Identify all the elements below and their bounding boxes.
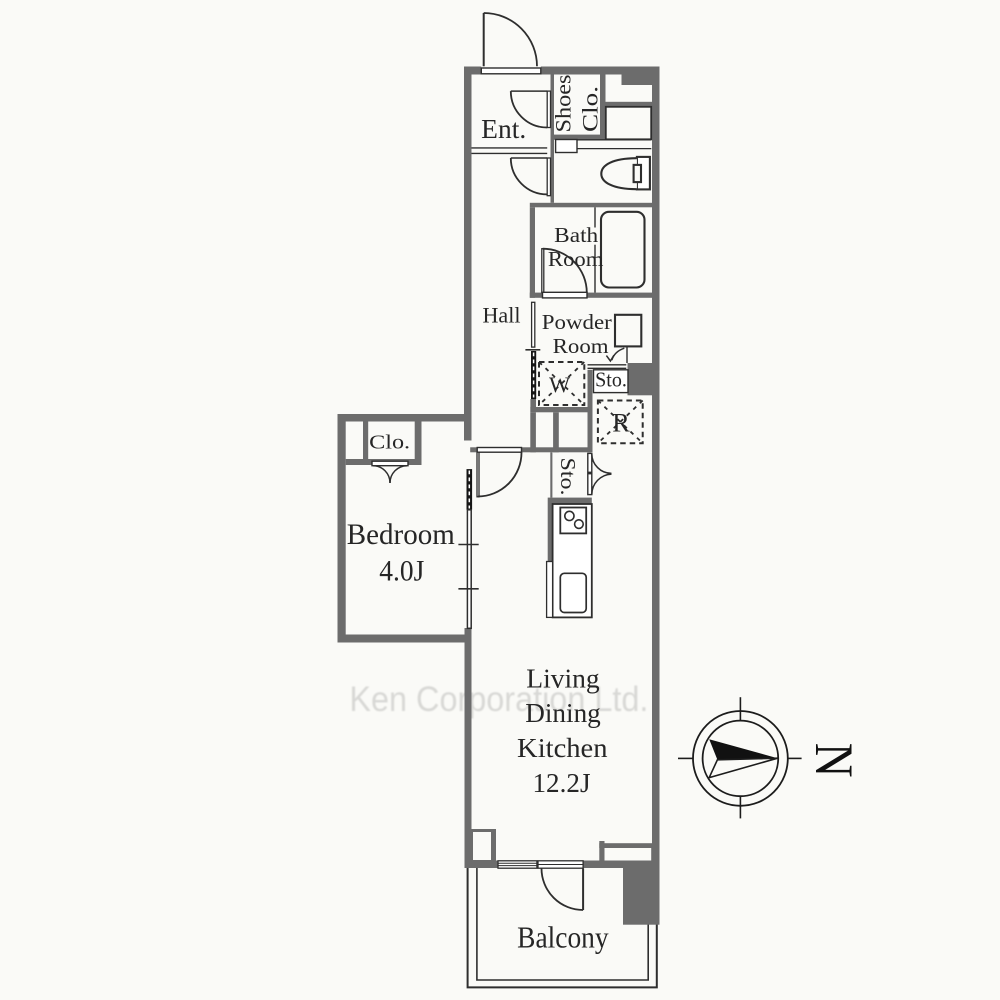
svg-text:Powder: Powder <box>542 310 612 334</box>
svg-text:Shoes: Shoes <box>550 75 575 133</box>
svg-text:N: N <box>804 743 864 778</box>
svg-text:Bath: Bath <box>554 223 598 247</box>
svg-text:Hall: Hall <box>483 302 521 327</box>
svg-text:Sto.: Sto. <box>556 458 580 496</box>
svg-text:Kitchen: Kitchen <box>517 732 608 763</box>
svg-text:Sto.: Sto. <box>595 368 627 392</box>
svg-text:4.0J: 4.0J <box>379 556 424 588</box>
svg-text:Living: Living <box>526 662 600 693</box>
svg-text:Ken Corporation Ltd.: Ken Corporation Ltd. <box>349 679 648 719</box>
svg-text:Room: Room <box>548 247 604 271</box>
svg-text:12.2J: 12.2J <box>533 767 591 798</box>
svg-text:R: R <box>612 408 630 437</box>
svg-text:Balcony: Balcony <box>517 920 609 954</box>
svg-text:Room: Room <box>553 334 609 358</box>
svg-text:Bedroom: Bedroom <box>347 519 455 551</box>
svg-text:Dining: Dining <box>525 697 601 728</box>
svg-text:Ent.: Ent. <box>481 114 526 144</box>
svg-text:W: W <box>549 372 571 397</box>
svg-text:Clo.: Clo. <box>578 86 603 132</box>
svg-text:Clo.: Clo. <box>369 432 410 454</box>
